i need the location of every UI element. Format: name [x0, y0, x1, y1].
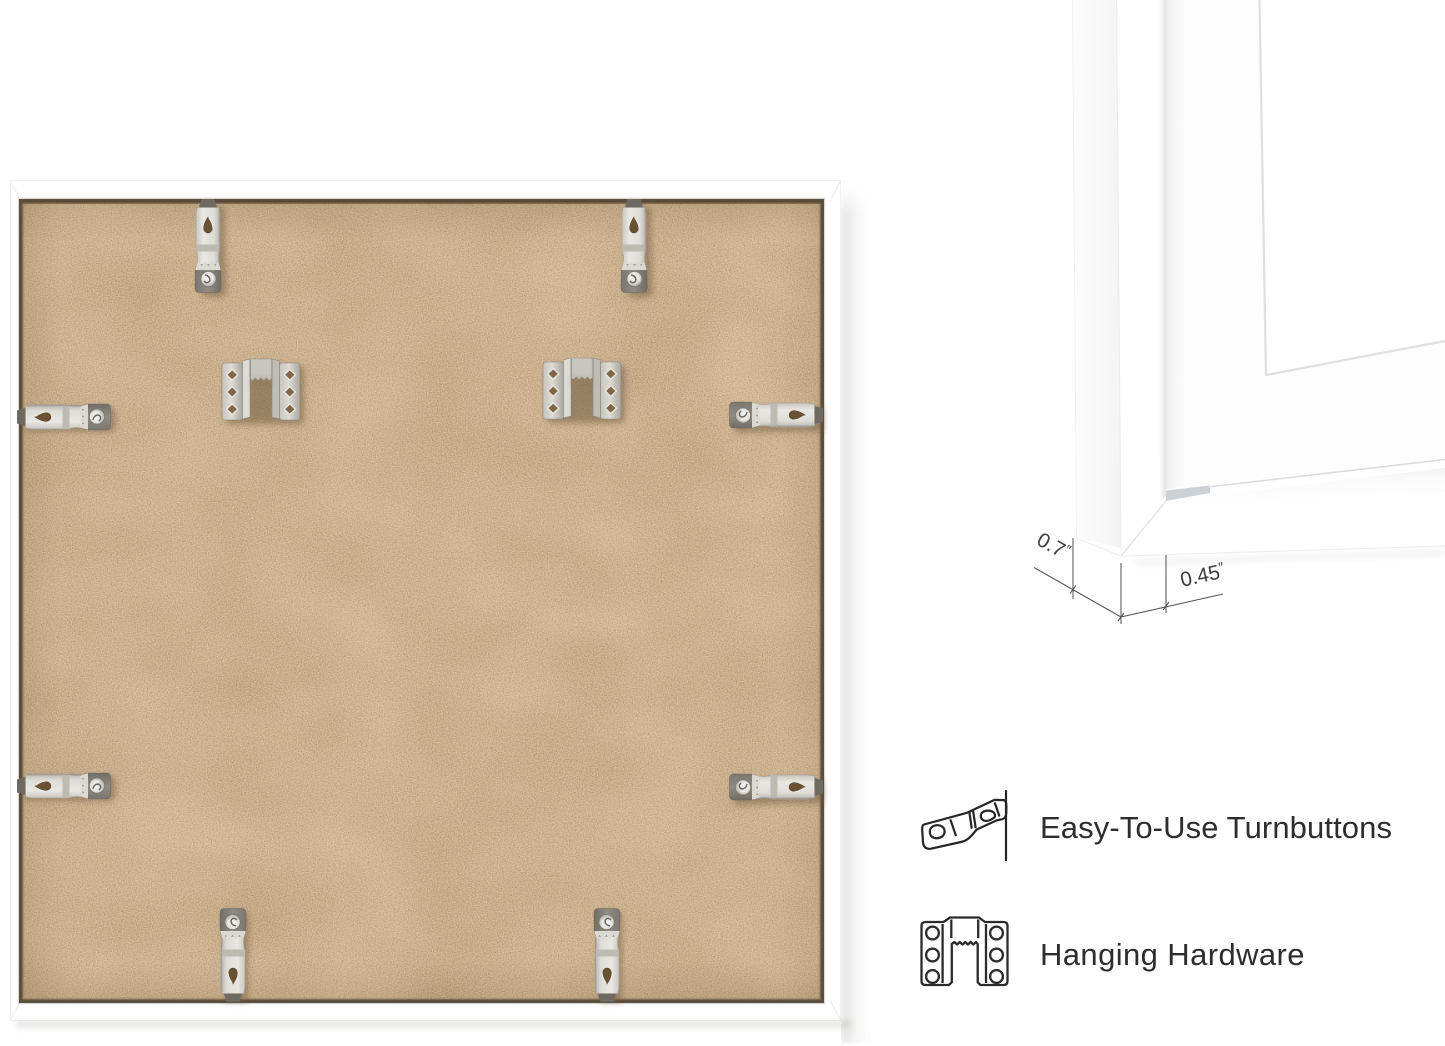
svg-text:0.7″: 0.7″ [1033, 527, 1074, 564]
